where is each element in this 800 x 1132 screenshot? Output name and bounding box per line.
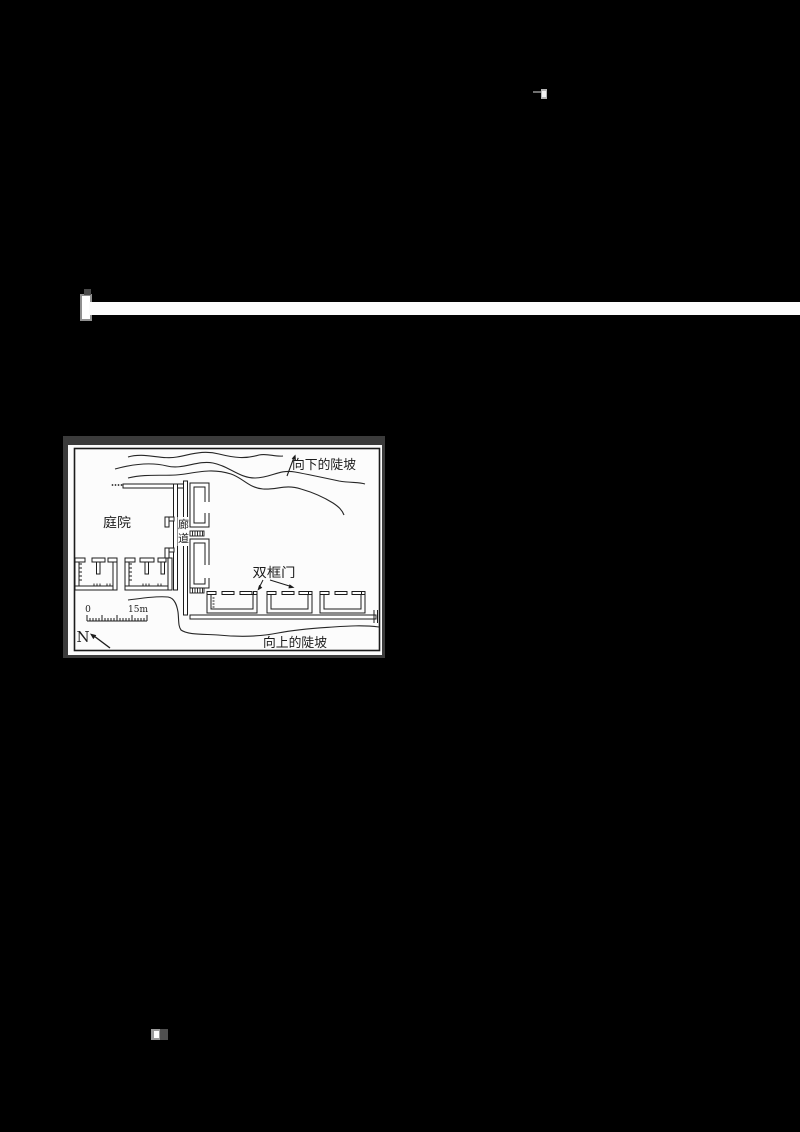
site-plan-figure: 向下的陡坡 庭院 廊 道 双框门 向上的陡坡 0 15m N [63,436,385,658]
scan-artifact-bottom-white [154,1031,159,1038]
label-corridor-2: 道 [178,531,189,545]
label-corridor-1: 廊 [178,517,189,531]
label-slope-bottom: 向上的陡坡 [263,635,327,651]
scan-artifact-bottom-dark [160,1029,168,1040]
scan-artifact-box-cap [84,289,91,295]
label-slope-top: 向下的陡坡 [292,457,356,473]
label-scale-start: 0 [85,605,91,615]
scan-artifact-speck-core [542,91,546,97]
label-scale-end: 15m [128,605,148,615]
scan-artifact-speck-line [533,91,541,93]
label-double-door: 双框门 [253,566,296,581]
door-dashes [207,592,365,595]
scan-artifact-stripe [89,302,800,315]
scanned-page: 向下的陡坡 庭院 廊 道 双框门 向上的陡坡 0 15m N [0,0,800,1132]
site-plan-svg: 向下的陡坡 庭院 廊 道 双框门 向上的陡坡 0 15m N [63,436,385,658]
label-north: N [76,628,89,646]
label-courtyard: 庭院 [103,515,131,531]
paper [68,445,382,655]
